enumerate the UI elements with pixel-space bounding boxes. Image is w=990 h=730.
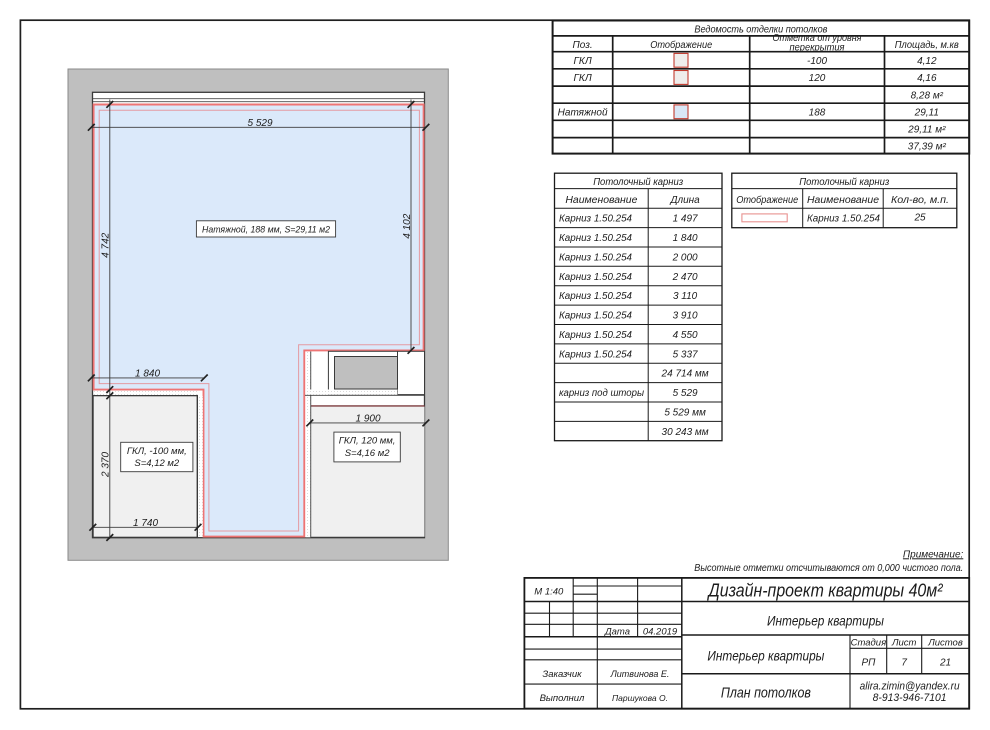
- svg-text:перекрытия: перекрытия: [790, 43, 846, 54]
- svg-text:Кол-во, м.п.: Кол-во, м.п.: [891, 195, 949, 206]
- svg-text:2 000: 2 000: [672, 252, 698, 263]
- svg-text:Карниз 1.50.254: Карниз 1.50.254: [559, 349, 632, 360]
- svg-text:М 1:40: М 1:40: [534, 587, 564, 598]
- svg-text:Карниз 1.50.254: Карниз 1.50.254: [807, 214, 880, 225]
- svg-text:Площадь, м.кв: Площадь, м.кв: [895, 40, 959, 51]
- svg-text:29,11 м²: 29,11 м²: [907, 125, 946, 136]
- svg-text:Натяжной, 188 мм, S=29,11 м2: Натяжной, 188 мм, S=29,11 м2: [202, 225, 331, 236]
- svg-text:1 840: 1 840: [135, 369, 160, 380]
- svg-text:Карниз 1.50.254: Карниз 1.50.254: [559, 272, 632, 283]
- svg-text:4 742: 4 742: [101, 232, 112, 257]
- svg-text:ГКЛ: ГКЛ: [573, 73, 591, 84]
- svg-text:Карниз 1.50.254: Карниз 1.50.254: [559, 291, 632, 302]
- svg-text:ГКЛ: ГКЛ: [573, 56, 591, 67]
- svg-text:30 243 мм: 30 243 мм: [662, 427, 709, 438]
- svg-text:План потолков: План потолков: [721, 685, 811, 702]
- svg-text:РП: РП: [861, 658, 876, 669]
- svg-text:Длина: Длина: [669, 195, 700, 206]
- svg-text:120: 120: [809, 73, 826, 84]
- svg-text:Примечание:: Примечание:: [903, 549, 964, 560]
- svg-text:Наименование: Наименование: [565, 195, 637, 206]
- svg-text:1 840: 1 840: [673, 233, 698, 244]
- svg-text:3 910: 3 910: [673, 311, 698, 322]
- svg-text:29,11: 29,11: [914, 107, 939, 118]
- svg-text:S=4,12 м2: S=4,12 м2: [134, 458, 180, 469]
- svg-text:4 102: 4 102: [402, 213, 413, 238]
- svg-text:alira.zimin@yandex.ru: alira.zimin@yandex.ru: [860, 681, 960, 693]
- svg-text:Дизайн-проект квартиры 40м²: Дизайн-проект квартиры 40м²: [707, 580, 943, 601]
- svg-text:188: 188: [809, 107, 826, 118]
- svg-text:25: 25: [913, 213, 926, 224]
- svg-text:Потолочный карниз: Потолочный карниз: [593, 177, 683, 188]
- svg-text:Отображение: Отображение: [650, 39, 712, 51]
- svg-text:Карниз 1.50.254: Карниз 1.50.254: [559, 252, 632, 263]
- svg-text:Лист: Лист: [891, 638, 917, 649]
- svg-text:Натяжной: Натяжной: [558, 107, 608, 118]
- svg-text:Стадия: Стадия: [851, 638, 887, 649]
- svg-text:2 370: 2 370: [101, 452, 112, 478]
- svg-text:Паршукова О.: Паршукова О.: [612, 693, 668, 703]
- svg-text:Листов: Листов: [927, 638, 963, 649]
- svg-text:Карниз 1.50.254: Карниз 1.50.254: [559, 233, 632, 244]
- svg-text:Выполнил: Выполнил: [540, 693, 585, 704]
- svg-text:5 529: 5 529: [673, 388, 698, 399]
- svg-text:Карниз 1.50.254: Карниз 1.50.254: [559, 214, 632, 225]
- svg-text:ГКЛ, 120 мм,: ГКЛ, 120 мм,: [339, 436, 396, 447]
- svg-text:37,39 м²: 37,39 м²: [908, 141, 947, 152]
- svg-text:1 497: 1 497: [673, 214, 698, 225]
- svg-text:Интерьер квартиры: Интерьер квартиры: [707, 648, 825, 664]
- svg-text:8-913-946-7101: 8-913-946-7101: [873, 692, 947, 704]
- svg-text:Высотные отметки отсчитываются: Высотные отметки отсчитываются от 0,000 …: [694, 563, 963, 574]
- svg-text:Поз.: Поз.: [573, 40, 593, 51]
- svg-text:24 714 мм: 24 714 мм: [661, 369, 709, 380]
- svg-text:5 529 мм: 5 529 мм: [664, 408, 706, 419]
- svg-text:5 529: 5 529: [247, 118, 272, 129]
- svg-text:Интерьер квартиры: Интерьер квартиры: [767, 613, 885, 629]
- svg-text:ГКЛ, -100 мм,: ГКЛ, -100 мм,: [127, 446, 187, 457]
- svg-text:4 550: 4 550: [673, 330, 698, 341]
- svg-text:8,28 м²: 8,28 м²: [911, 90, 944, 101]
- svg-text:Наименование: Наименование: [807, 195, 879, 206]
- svg-text:7: 7: [901, 658, 907, 669]
- svg-text:4,16: 4,16: [917, 73, 937, 84]
- svg-text:Заказчик: Заказчик: [542, 669, 582, 680]
- svg-text:Литвинова Е.: Литвинова Е.: [610, 669, 670, 679]
- svg-text:04.2019: 04.2019: [643, 627, 678, 638]
- svg-text:Карниз 1.50.254: Карниз 1.50.254: [559, 330, 632, 341]
- svg-text:1 740: 1 740: [133, 518, 158, 529]
- svg-text:Карниз 1.50.254: Карниз 1.50.254: [559, 311, 632, 322]
- svg-text:1 900: 1 900: [355, 414, 380, 425]
- svg-text:5 337: 5 337: [673, 349, 698, 360]
- svg-text:-100: -100: [807, 56, 827, 67]
- svg-text:3 110: 3 110: [673, 291, 698, 302]
- svg-text:4,12: 4,12: [917, 56, 937, 67]
- svg-text:Дата: Дата: [604, 627, 630, 638]
- svg-text:2 470: 2 470: [672, 272, 698, 283]
- svg-text:21: 21: [939, 658, 951, 669]
- svg-text:карниз под шторы: карниз под шторы: [559, 388, 645, 399]
- svg-text:Потолочный карниз: Потолочный карниз: [799, 177, 889, 188]
- svg-text:S=4,16 м2: S=4,16 м2: [345, 448, 391, 459]
- svg-text:Отображение: Отображение: [736, 194, 798, 206]
